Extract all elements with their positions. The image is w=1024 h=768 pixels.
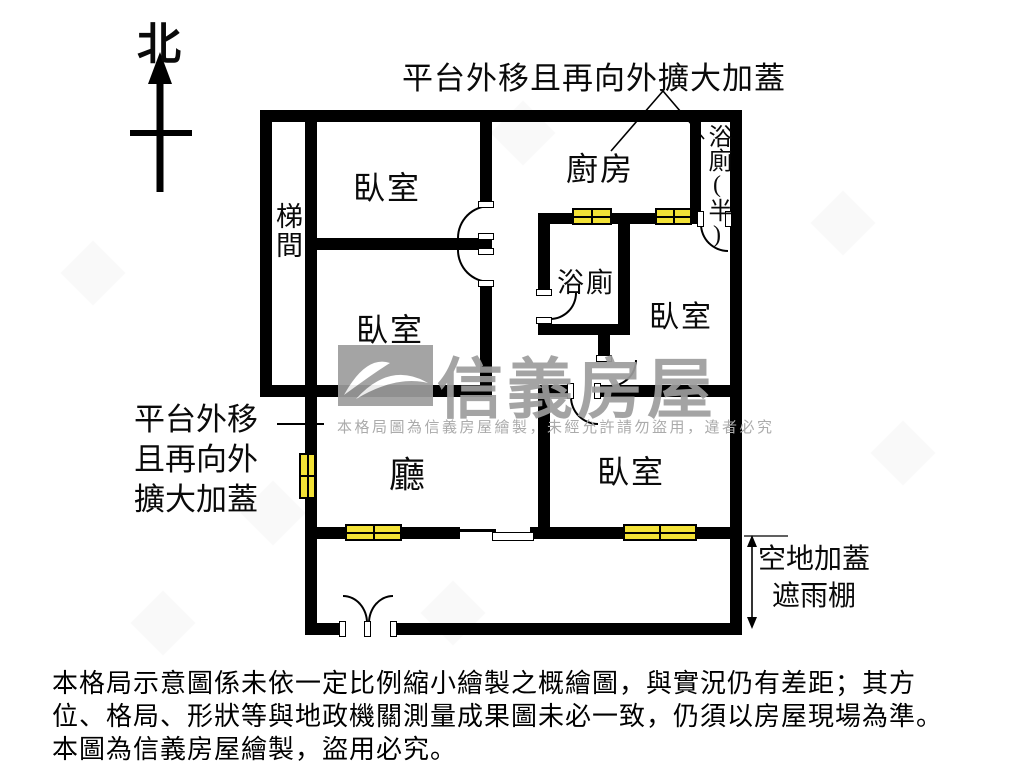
floor-plan-page: 北 平台外移且再向外擴大加蓋 平台外移 且再向外 擴大加蓋 空地加蓋 遮雨棚 梯…: [0, 0, 1024, 768]
annotation-left-line: 擴大加蓋: [134, 480, 258, 520]
window-symbol: [572, 208, 612, 225]
north-label: 北: [137, 8, 181, 72]
door-jamb: [478, 248, 494, 255]
room-label-living-room: 廳: [389, 446, 427, 498]
annotation-right: 空地加蓋 遮雨棚: [758, 541, 870, 615]
window-symbol: [655, 208, 692, 225]
room-label-bedroom: 臥室: [649, 292, 713, 336]
room-label-bedroom: 臥室: [597, 447, 665, 493]
wall-segment: [305, 238, 492, 250]
north-arrow-icon: [130, 52, 192, 192]
door-jamb: [536, 317, 552, 324]
wall-segment: [394, 623, 742, 635]
window-symbol: [623, 524, 697, 541]
door-jamb: [478, 280, 494, 287]
annotation-top: 平台外移且再向外擴大加蓋: [402, 53, 786, 98]
disclaimer-line: 本圖為信義房屋繪製，盜用必究。: [52, 733, 943, 766]
annotation-left-line: 且再向外: [134, 440, 258, 480]
wall-segment: [305, 623, 340, 635]
annotation-right-line: 空地加蓋: [758, 541, 870, 578]
annotation-left: 平台外移 且再向外 擴大加蓋: [134, 400, 258, 520]
room-label-bathroom: 浴廁: [557, 261, 615, 300]
room-label-half-bathroom: 浴廁(半): [700, 124, 735, 248]
wall-segment: [697, 527, 742, 539]
wall-segment: [260, 110, 742, 122]
window-symbol: [299, 453, 316, 499]
wall-segment: [530, 527, 623, 539]
disclaimer-line: 本格局示意圖係未依一定比例縮小繪製之概繪圖，與實況仍有差距；其方: [52, 667, 943, 700]
window-symbol: [345, 524, 402, 541]
door-jamb: [390, 621, 397, 637]
watermark-notice-text: 本格局圖為信義房屋繪製，未經允許請勿盜用，違者必究: [337, 416, 775, 437]
wall-segment: [538, 324, 630, 335]
door-jamb: [536, 289, 552, 296]
annotation-right-line: 遮雨棚: [758, 578, 870, 615]
wall-segment: [305, 385, 317, 635]
wall-segment: [480, 110, 492, 205]
room-label-bedroom: 臥室: [353, 163, 421, 209]
wall-segment: [618, 213, 630, 335]
disclaimer-text: 本格局示意圖係未依一定比例縮小繪製之概繪圖，與實況仍有差距；其方 位、格局、形狀…: [52, 667, 943, 766]
sinyi-logo-icon: [338, 345, 433, 406]
room-label-stairwell: 梯間: [268, 202, 307, 260]
annotation-left-line: 平台外移: [134, 400, 258, 440]
door-jamb: [339, 621, 346, 637]
room-label-kitchen: 廚房: [566, 144, 634, 190]
sliding-door-symbol: [458, 529, 496, 532]
wall-segment: [402, 527, 460, 539]
disclaimer-line: 位、格局、形狀等與地政機關測量成果圖未必一致，仍須以房屋現場為準。: [52, 700, 943, 733]
door-jamb: [478, 201, 494, 208]
wall-segment: [538, 213, 550, 293]
wall-segment: [305, 527, 345, 539]
sliding-door-symbol: [492, 532, 534, 541]
door-jamb: [478, 233, 494, 240]
door-jamb: [364, 621, 371, 637]
